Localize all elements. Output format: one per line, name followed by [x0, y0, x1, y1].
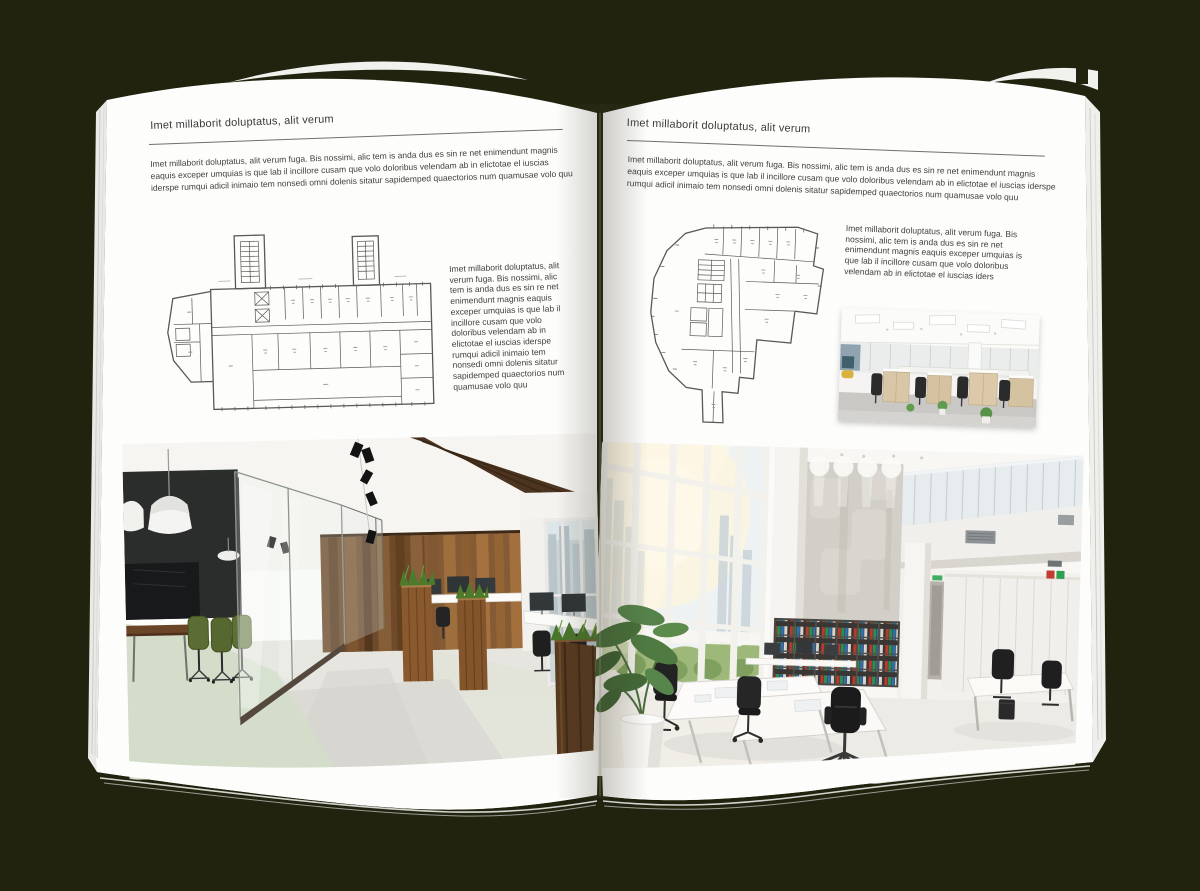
book-pages-base	[0, 0, 1200, 891]
right-page: Imet millaborit doluptatus, alit verum I…	[0, 0, 1200, 891]
book-overlay	[0, 0, 1200, 891]
left-page: Imet millaborit doluptatus, alit verum I…	[0, 0, 1200, 891]
left-page-header-rule	[149, 129, 563, 145]
left-floor-plan-image	[157, 225, 452, 418]
right-office-photo-large	[593, 442, 1084, 789]
left-office-photo	[122, 433, 604, 780]
right-page-intro-paragraph: Imet millaborit doluptatus, alit verum f…	[627, 153, 1058, 205]
left-page-header: Imet millaborit doluptatus, alit verum	[150, 113, 334, 132]
right-page-header: Imet millaborit doluptatus, alit verum	[627, 117, 811, 135]
left-page-sidebar-text: Imet millaborit doluptatus, alit verum f…	[449, 260, 573, 393]
right-office-photo-small	[838, 308, 1040, 427]
right-page-caption-text: Imet millaborit doluptatus, alit verum f…	[844, 223, 1024, 283]
right-floor-plan-image	[641, 220, 844, 432]
magazine-spread-mockup: Imet millaborit doluptatus, alit verum I…	[0, 0, 1200, 891]
left-page-intro-paragraph: Imet millaborit doluptatus, alit verum f…	[150, 143, 579, 194]
right-page-header-rule	[627, 140, 1045, 157]
